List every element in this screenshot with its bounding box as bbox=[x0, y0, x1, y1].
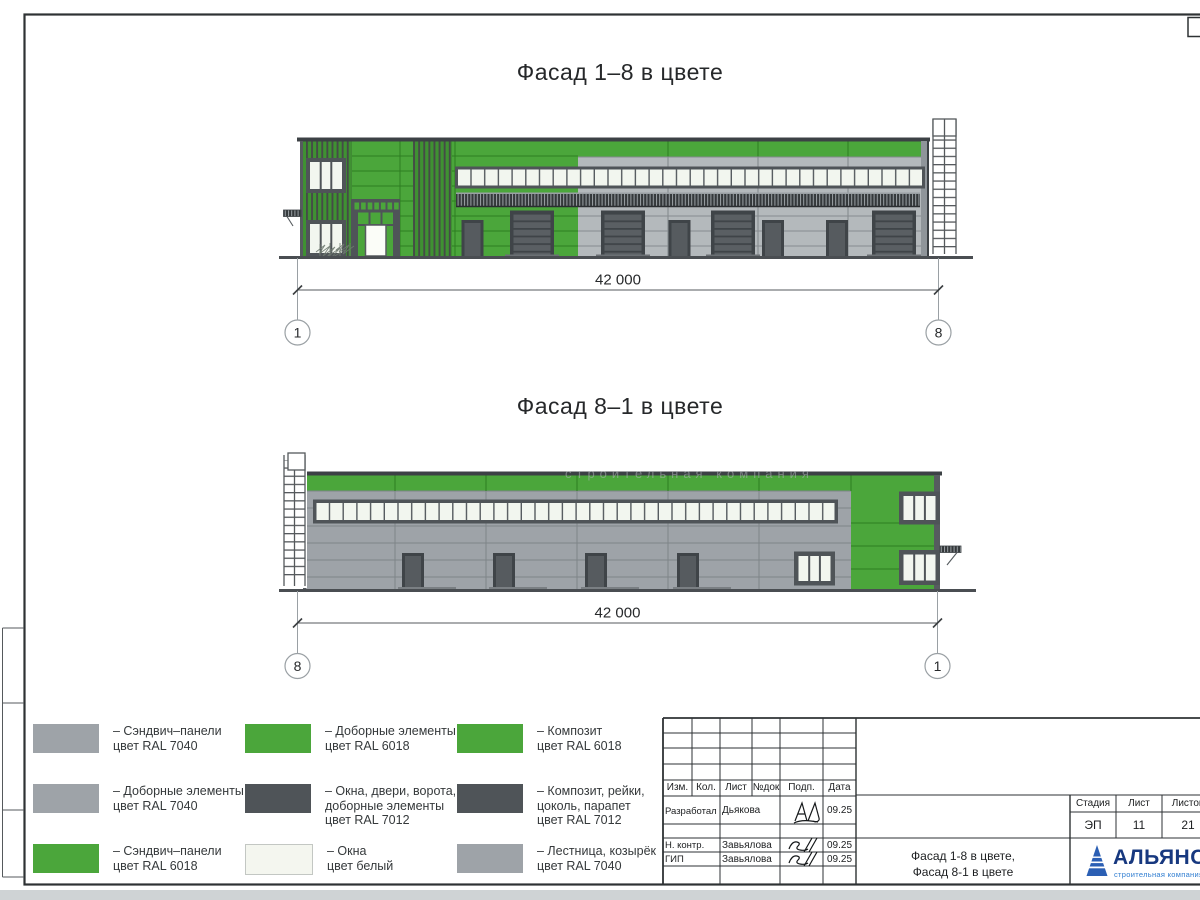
company-name: АЛЬЯНС bbox=[1113, 846, 1200, 870]
dimension-label-top: 42 000 bbox=[595, 272, 641, 289]
tb-sheet-value: 11 bbox=[1116, 818, 1162, 832]
legend-item: – Окна, двери, ворота,доборные элементыц… bbox=[245, 783, 457, 843]
legend-item: – Сэндвич–панелицвет RAL 6018 bbox=[33, 843, 245, 890]
facade-1-8-entrance-portal bbox=[351, 199, 400, 256]
axis-label-8: 8 bbox=[294, 658, 302, 674]
signatures bbox=[789, 803, 819, 866]
axis-label-8: 8 bbox=[935, 325, 943, 341]
dimension-label-bottom: 42 000 bbox=[595, 605, 641, 622]
tb-stage-label: Стадия bbox=[1070, 798, 1116, 809]
ground-line-top bbox=[279, 256, 973, 259]
left-margin-marks bbox=[3, 628, 25, 877]
facade-1-8-dimension: 42 000 1 8 bbox=[285, 258, 951, 345]
facade-8-1-window-band bbox=[313, 500, 838, 524]
tb-header-data: Дата bbox=[823, 782, 856, 793]
tb-header-izm: Изм. bbox=[663, 782, 692, 793]
axis-label-1: 1 bbox=[294, 325, 302, 341]
company-subtitle: строительная компания bbox=[1114, 870, 1200, 879]
color-legend: – Сэндвич–панелицвет RAL 7040 – Доборные… bbox=[33, 723, 675, 890]
facade-8-1-title: Фасад 8–1 в цвете bbox=[320, 393, 920, 420]
ground-line-bottom bbox=[279, 589, 976, 592]
facade-8-1-ladder bbox=[281, 453, 307, 588]
watermark-text: строительная компания bbox=[565, 466, 814, 481]
legend-item: – Лестница, козырёкцвет RAL 7040 bbox=[457, 843, 675, 890]
legend-swatch-ral6018 bbox=[33, 844, 99, 873]
tb-sheets-label: Листов bbox=[1162, 798, 1200, 809]
drawing-sheet: 42 000 1 8 bbox=[0, 0, 1200, 890]
tb-role-ncontr: Н. контр. bbox=[665, 840, 719, 851]
tb-date-1: 09.25 bbox=[823, 805, 856, 816]
facade-8-1-right-canopy bbox=[940, 546, 961, 565]
tb-date-2: 09.25 bbox=[823, 840, 856, 851]
facade-1-8-left-canopy bbox=[284, 210, 302, 226]
facade-1-8-ladder bbox=[930, 118, 958, 256]
legend-swatch-ral7040 bbox=[33, 724, 99, 753]
tb-name-zavyalova-2: Завьялова bbox=[722, 854, 779, 865]
facade-1-8-canopy bbox=[456, 193, 920, 207]
tb-header-list: Лист bbox=[720, 782, 752, 793]
legend-swatch-ral6018 bbox=[457, 724, 523, 753]
legend-swatch-white bbox=[245, 844, 313, 875]
legend-swatch-ral6018 bbox=[245, 724, 311, 753]
legend-item: – Композитцвет RAL 6018 bbox=[457, 723, 675, 783]
facade-8-1-gray-window bbox=[794, 552, 835, 586]
legend-item: – Композит, рейки,цоколь, парапетцвет RA… bbox=[457, 783, 675, 843]
tb-sheet-label: Лист bbox=[1116, 798, 1162, 809]
legend-swatch-ral7012 bbox=[457, 784, 523, 813]
signature-dyakova bbox=[794, 803, 819, 823]
company-logo-icon bbox=[1087, 845, 1108, 876]
tb-doc-title: Фасад 1-8 в цвете, Фасад 8-1 в цвете bbox=[860, 848, 1066, 880]
facade-1-8-title: Фасад 1–8 в цвете bbox=[320, 59, 920, 86]
facade-1-8-window-band bbox=[455, 167, 925, 189]
legend-item: – Сэндвич–панелицвет RAL 7040 bbox=[33, 723, 245, 783]
tb-header-ndok: №док bbox=[752, 782, 780, 793]
legend-swatch-ral7040 bbox=[457, 844, 523, 873]
tb-header-podp: Подп. bbox=[780, 782, 823, 793]
legend-swatch-ral7012 bbox=[245, 784, 311, 813]
legend-swatch-ral7040 bbox=[33, 784, 99, 813]
legend-item: – Доборные элементыцвет RAL 6018 bbox=[245, 723, 457, 783]
tb-header-kol: Кол. bbox=[692, 782, 720, 793]
tb-date-3: 09.25 bbox=[823, 854, 856, 865]
axis-label-1: 1 bbox=[934, 658, 942, 674]
signature-zavyalova-2 bbox=[789, 852, 817, 866]
tb-name-zavyalova-1: Завьялова bbox=[722, 840, 779, 851]
facade-8-1-dimension: 42 000 8 1 bbox=[285, 591, 950, 679]
signature-zavyalova-1 bbox=[789, 838, 817, 852]
tb-role-gip: ГИП bbox=[665, 854, 719, 865]
corner-stamp-box bbox=[1188, 18, 1200, 37]
tb-sheets-value: 21 bbox=[1162, 818, 1200, 832]
tb-name-dyakova: Дьякова bbox=[722, 805, 779, 816]
legend-item: – Доборные элементыцвет RAL 7040 bbox=[33, 783, 245, 843]
tb-stage-value: ЭП bbox=[1070, 818, 1116, 832]
legend-item: – Окнацвет белый bbox=[245, 843, 457, 890]
tb-role-developed: Разработал bbox=[665, 806, 719, 817]
facade-1-8-drawing bbox=[279, 118, 973, 259]
